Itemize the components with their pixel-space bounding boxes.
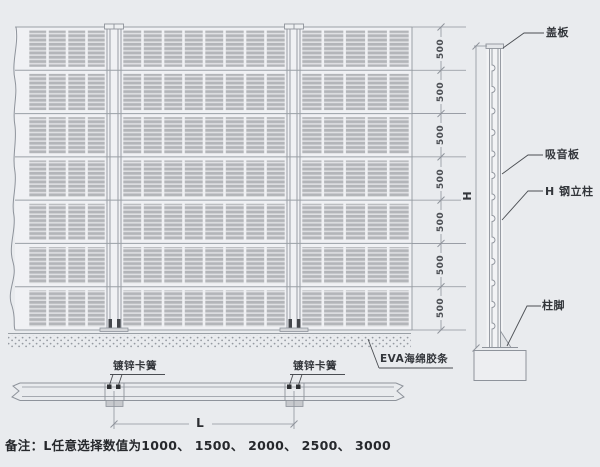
front-height-dim-label: 500 [435, 37, 447, 61]
front-height-dim-label: 500 [435, 80, 447, 104]
height-dim-label: H [461, 186, 475, 206]
h-steel-column-label: H 钢立柱 [545, 185, 594, 198]
sound-barrier-drawing: 盖板 吸音板 H 钢立柱 柱脚 EVA海绵胶条 镀锌卡簧 镀锌卡簧 L H 备注… [0, 0, 600, 467]
column-base-label: 柱脚 [542, 299, 565, 312]
clip-label-left: 镀锌卡簧 [113, 360, 157, 373]
clip-label-right: 镀锌卡簧 [293, 360, 337, 373]
front-height-dim-label: 500 [435, 210, 447, 234]
drawing-linework [0, 0, 600, 467]
cover-plate-label: 盖板 [546, 26, 569, 39]
side-view [473, 33, 545, 381]
front-height-dim-label: 500 [435, 253, 447, 277]
length-dim-label: L [190, 416, 210, 430]
eva-strip-label: EVA海绵胶条 [380, 353, 448, 366]
front-view [8, 24, 412, 348]
front-height-dim-label: 500 [435, 296, 447, 320]
drawing-note: 备注：L任意选择数值为1000、 1500、 2000、 2500、 3000 [5, 435, 391, 454]
absorber-panel-label: 吸音板 [545, 148, 580, 161]
front-height-dim-label: 500 [435, 167, 447, 191]
front-height-dim-label: 500 [435, 123, 447, 147]
